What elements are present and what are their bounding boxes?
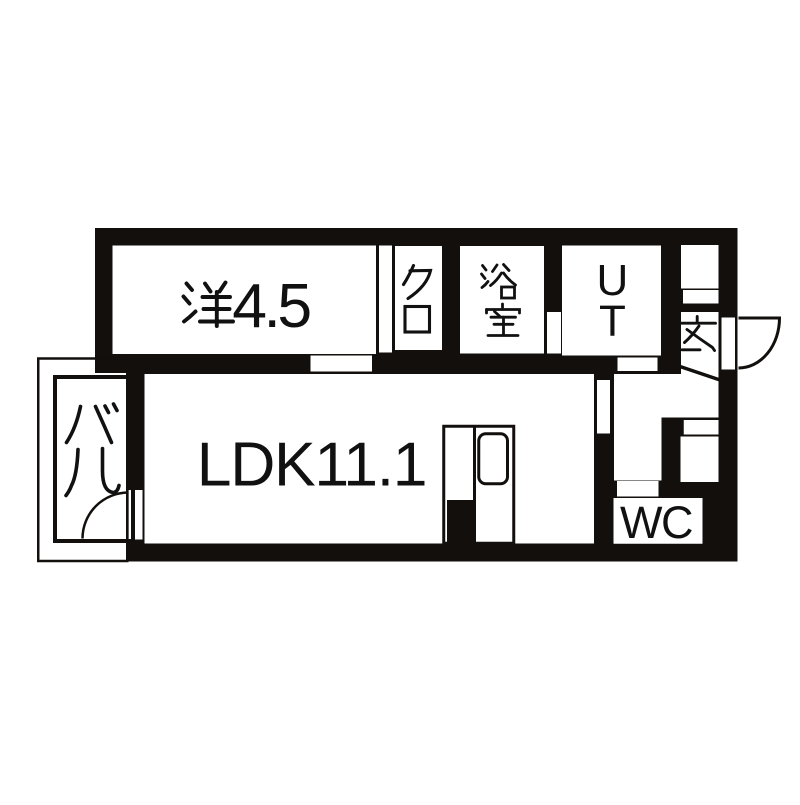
svg-text:T: T	[599, 297, 626, 346]
svg-text:4.5: 4.5	[232, 271, 310, 341]
svg-text:WC: WC	[620, 497, 692, 548]
svg-text:LDK11.1: LDK11.1	[197, 430, 427, 500]
